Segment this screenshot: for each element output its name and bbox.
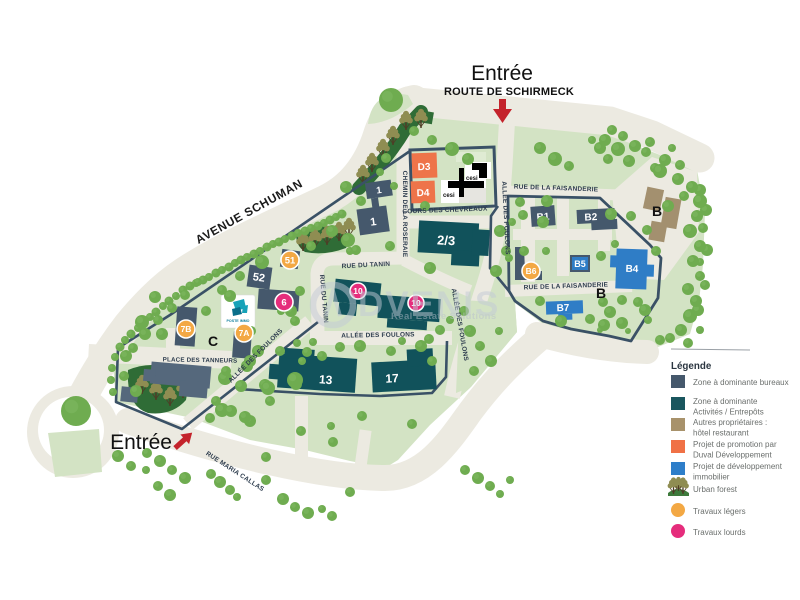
svg-text:13: 13 [319, 372, 334, 387]
svg-text:B5: B5 [574, 259, 586, 269]
svg-text:7A: 7A [239, 328, 250, 338]
svg-text:D4: D4 [416, 188, 430, 199]
svg-text:cesi: cesi [443, 193, 455, 199]
svg-text:17: 17 [385, 371, 399, 386]
svg-text:Entrée: Entrée [110, 431, 172, 454]
svg-text:B7: B7 [556, 303, 570, 314]
svg-text:Projet de promotion par: Projet de promotion par [693, 440, 777, 449]
svg-text:cesi: cesi [466, 176, 478, 182]
svg-text:B2: B2 [584, 212, 598, 224]
svg-text:51: 51 [285, 255, 296, 266]
svg-text:POSTE IMMO: POSTE IMMO [227, 319, 250, 323]
svg-text:B: B [596, 285, 606, 301]
svg-text:B4: B4 [625, 264, 639, 275]
svg-text:C: C [208, 333, 218, 349]
svg-text:Zone à dominante bureaux: Zone à dominante bureaux [693, 378, 789, 387]
svg-text:hôtel restaurant: hôtel restaurant [693, 429, 749, 438]
svg-text:2/3: 2/3 [437, 232, 456, 248]
svg-text:52: 52 [252, 271, 266, 285]
svg-text:B: B [652, 203, 662, 219]
svg-text:7B: 7B [181, 324, 192, 334]
svg-text:immobilier: immobilier [693, 473, 730, 482]
svg-text:PLACE DES TANNEURS: PLACE DES TANNEURS [163, 356, 238, 364]
svg-text:6: 6 [281, 297, 286, 308]
svg-text:B6: B6 [526, 266, 537, 276]
svg-text:ROUTE DE SCHIRMECK: ROUTE DE SCHIRMECK [444, 86, 574, 98]
svg-text:Travaux lourds: Travaux lourds [693, 528, 746, 537]
svg-text:Duval Développement: Duval Développement [693, 451, 772, 460]
svg-text:Légende: Légende [671, 361, 712, 372]
svg-text:Real Estate Solutions: Real Estate Solutions [391, 311, 497, 322]
svg-text:Urban forest: Urban forest [693, 485, 738, 494]
svg-text:D3: D3 [417, 162, 431, 173]
svg-text:Projet de développement: Projet de développement [693, 462, 783, 471]
svg-text:Travaux légers: Travaux légers [693, 507, 746, 516]
svg-text:Activités / Entrepôts: Activités / Entrepôts [693, 408, 764, 417]
svg-text:Zone à dominante: Zone à dominante [693, 397, 758, 406]
svg-text:Entrée: Entrée [471, 62, 533, 85]
svg-text:Autres propriétaires :: Autres propriétaires : [693, 418, 767, 427]
